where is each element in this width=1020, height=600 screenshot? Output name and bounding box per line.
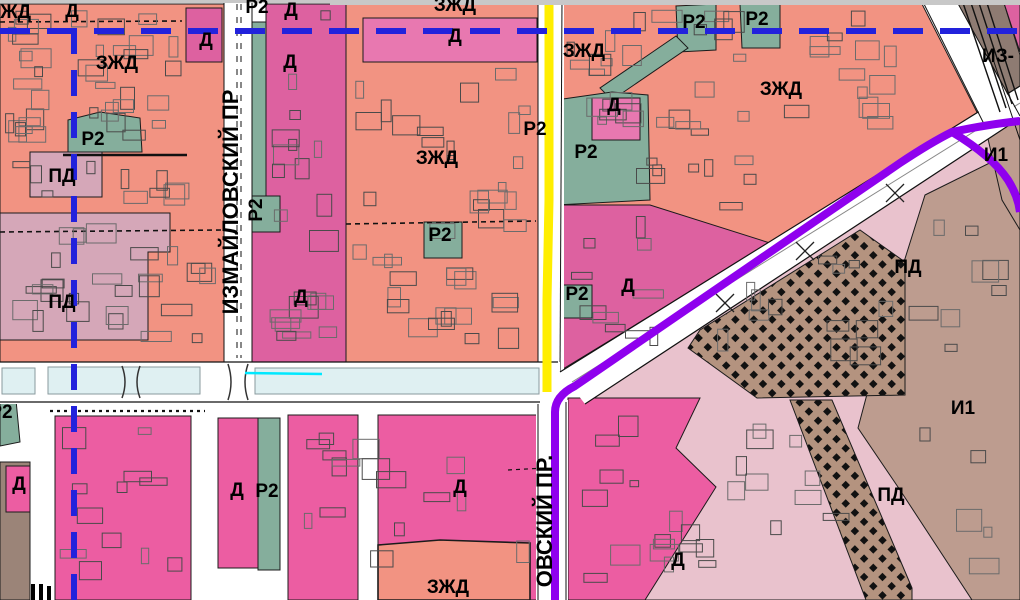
zone-label: ПД xyxy=(48,166,76,187)
zone-label: ЗЖД xyxy=(563,41,606,62)
zone-label: Р2 xyxy=(574,142,597,163)
zone-label: Д xyxy=(199,30,213,51)
street-label: ОВСКИЙ ПР. xyxy=(532,455,557,588)
zone-label: ЗЖД xyxy=(760,79,803,100)
zone-label: Д xyxy=(671,550,685,571)
zone-label: ЗЖД xyxy=(416,148,459,169)
zone-label: Р2 xyxy=(523,119,546,140)
zone-label: Д xyxy=(283,52,297,73)
zone-label: ИЗ- xyxy=(982,46,1014,67)
zone-label: ЗЖД xyxy=(96,53,139,74)
zone-label: ЗЖД xyxy=(427,577,470,598)
zone-label: Р2 xyxy=(246,198,267,221)
zone-label: ПД xyxy=(894,257,922,278)
zoning-map-canvas: ЗЖДДР2ДДЗЖДДР2Р2ИЗ-ЗЖДДЗЖДЗЖДДР2Р2Р2И1ЗЖ… xyxy=(0,0,1020,600)
building-hatch-marks xyxy=(31,584,51,600)
zone-label: Р2 xyxy=(745,9,768,30)
zone-label: Р2 xyxy=(565,284,588,305)
zone-label: Д xyxy=(294,287,308,308)
zone-label: Р2 xyxy=(245,0,268,18)
zone-label: И1 xyxy=(984,145,1009,166)
zone-label: И1 xyxy=(951,398,976,419)
zone-label: Д xyxy=(448,26,462,47)
zone-label: Р2 xyxy=(81,129,104,150)
zone-label: Р2 xyxy=(682,12,705,33)
street-label: ИЗМАЙЛОВСКИЙ ПР xyxy=(218,90,243,315)
road-yellow-line xyxy=(547,0,549,392)
zone-label: Р2 xyxy=(255,481,278,502)
zone-label: Д xyxy=(284,0,298,21)
zone-label: Д xyxy=(621,276,635,297)
zone-label: ПД xyxy=(48,292,76,313)
zone-label: ПД xyxy=(877,485,905,506)
zone-label: Д xyxy=(607,95,621,116)
zone-label: ЗЖД xyxy=(0,2,32,23)
zone-label: ЗЖД xyxy=(434,0,477,16)
zone-label: Д xyxy=(12,474,26,495)
zone-label: Р2 xyxy=(428,225,451,246)
zone-label: Д xyxy=(230,480,244,501)
zone-label: Д xyxy=(65,1,79,22)
stream-cyan-line xyxy=(245,373,322,374)
map-viewport[interactable]: ЗЖДДР2ДДЗЖДДР2Р2ИЗ-ЗЖДДЗЖДЗЖДДР2Р2Р2И1ЗЖ… xyxy=(0,0,1020,600)
zone-label: Д xyxy=(453,477,467,498)
zone-label: Р2 xyxy=(0,402,13,423)
